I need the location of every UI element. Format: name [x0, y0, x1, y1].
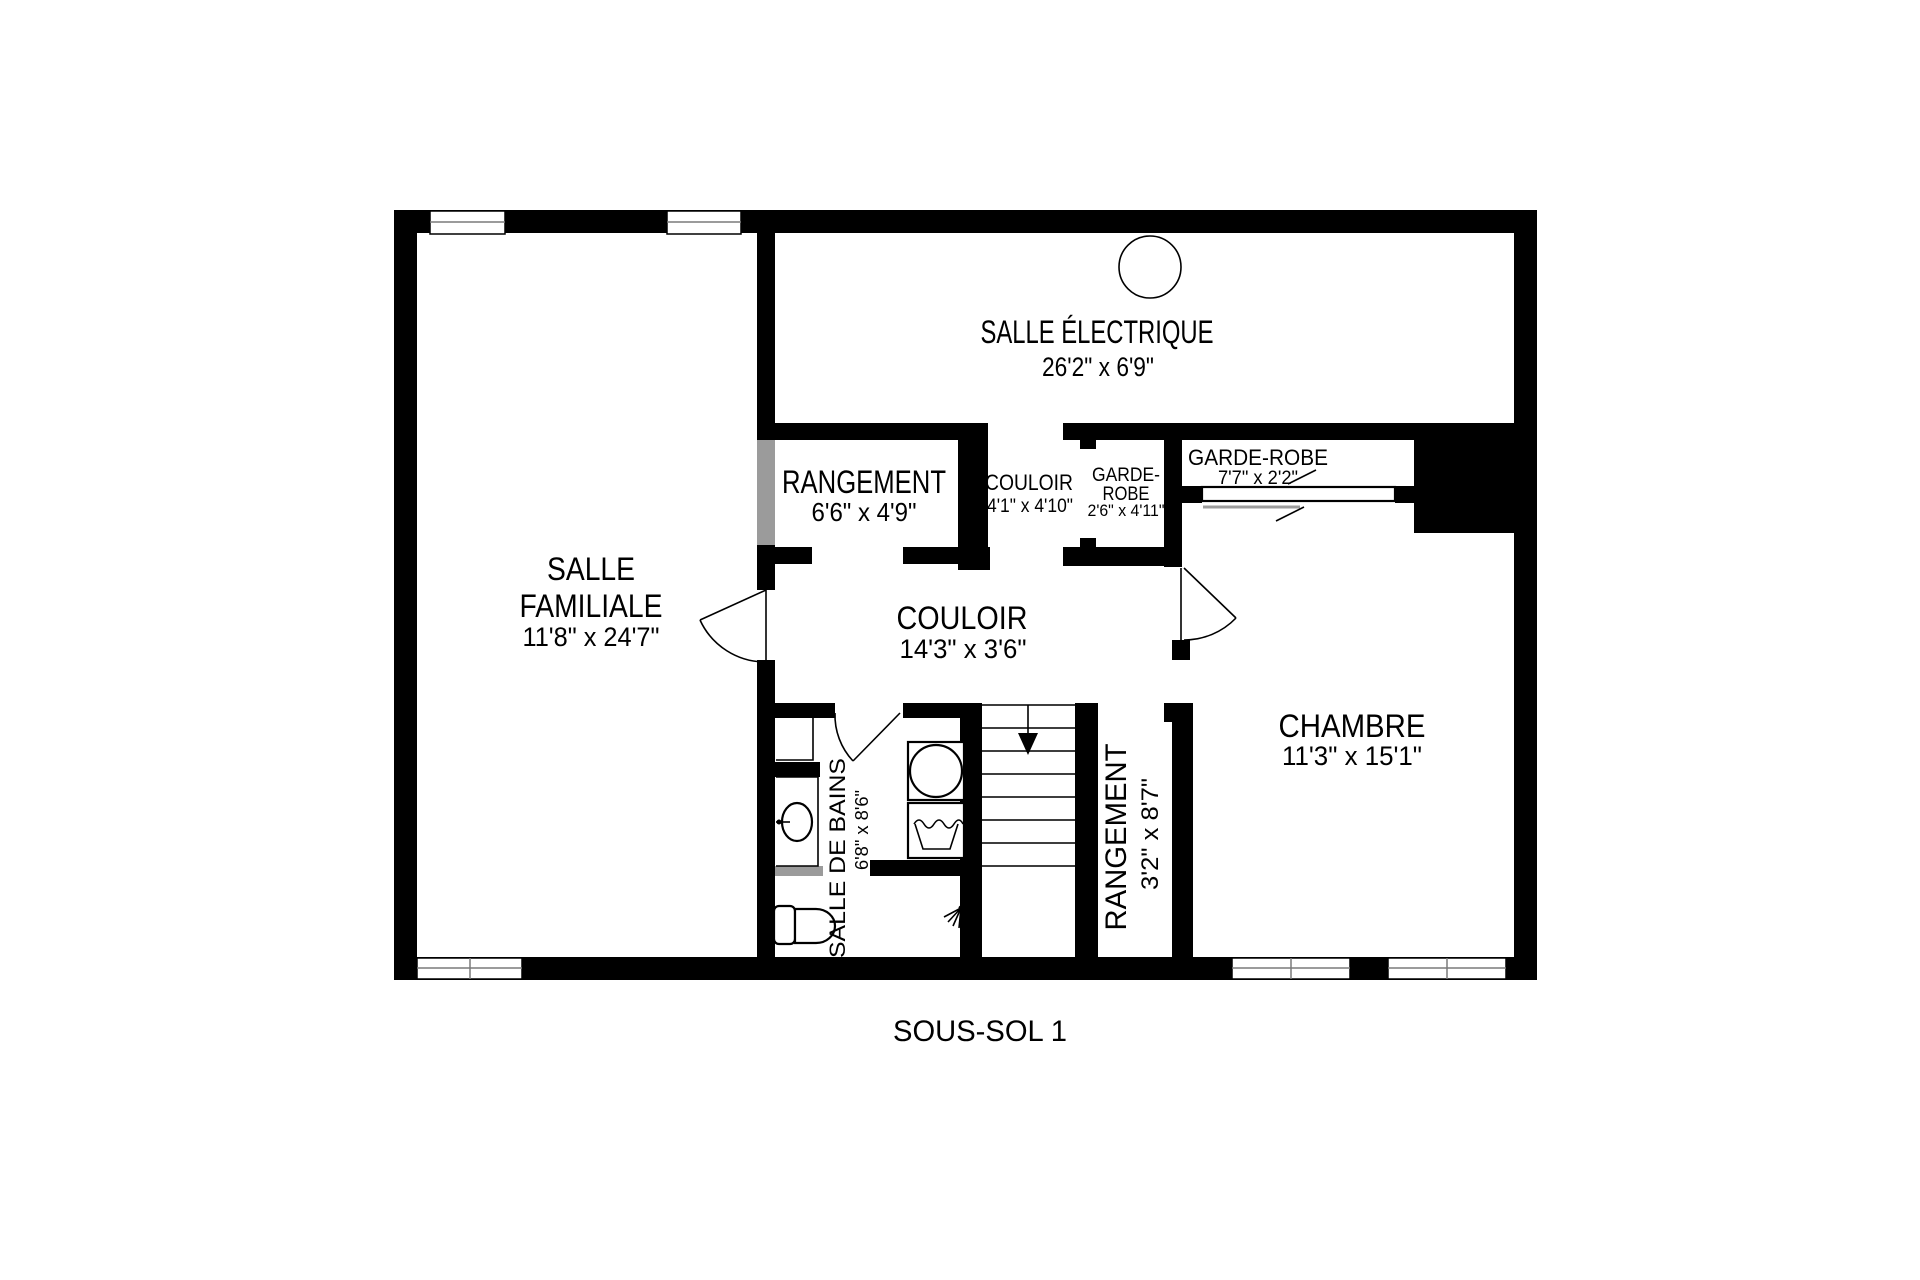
wall-electrique-south-east	[1063, 423, 1414, 440]
stub-garde-robe-top	[1080, 440, 1096, 449]
sliding-door-garde-robe	[1182, 470, 1414, 521]
floor-plan-canvas: SALLE ÉLECTRIQUE 26'2" x 6'9" SALLE FAMI…	[0, 0, 1920, 1280]
label-couloir-petit-dims: 4'1" x 4'10"	[987, 496, 1073, 517]
electrical-column-icon	[1119, 236, 1181, 298]
stairs	[982, 705, 1075, 866]
label-salle-familiale-dims: 11'8" x 24'7"	[523, 622, 660, 652]
wall-bath-partition	[757, 762, 820, 777]
window-top-1	[430, 211, 505, 234]
wall-corridor-north-1	[757, 547, 812, 564]
label-couloir-principal: COULOIR	[897, 600, 1028, 636]
label-garde-robe-long-dims: 7'7" x 2'2"	[1218, 468, 1298, 489]
washer-icon	[908, 742, 964, 800]
label-chambre: CHAMBRE	[1279, 708, 1426, 744]
stub-garde-robe-bottom	[1080, 538, 1096, 547]
label-salle-electrique: SALLE ÉLECTRIQUE	[981, 314, 1214, 350]
wall-rangement-right	[958, 440, 988, 547]
wall-bottom	[394, 957, 1537, 980]
wall-rangement-bas-right	[1172, 703, 1193, 957]
structural-mass	[1414, 423, 1537, 533]
label-garde-robe-petit-dims: 2'6" x 4'11"	[1088, 502, 1165, 520]
laundry-tub-icon	[908, 803, 964, 858]
label-salle-familiale-line2: FAMILIALE	[520, 588, 663, 624]
stub-chambre-door	[1172, 640, 1190, 660]
label-salle-de-bains-dims: 6'8" x 8'6"	[852, 790, 872, 870]
label-chambre-dims: 11'3" x 15'1"	[1282, 741, 1422, 771]
wall-stairs-right	[1075, 703, 1098, 957]
label-salle-electrique-dims: 26'2" x 6'9"	[1042, 352, 1154, 382]
wall-corridor-south-1	[775, 703, 835, 718]
window-bottom-left	[417, 958, 522, 979]
label-rangement-bas-dims: 3'2" x 8'7"	[1137, 778, 1164, 890]
wall-familiale-gray-segment	[757, 438, 775, 545]
window-top-2	[667, 211, 741, 234]
door-salle-de-bains	[835, 713, 900, 761]
vanity-sink-icon	[776, 777, 818, 866]
wall-electrique-south-west	[757, 423, 988, 440]
label-couloir-petit: COULOIR	[985, 470, 1073, 495]
wall-familiale-top	[757, 233, 775, 438]
window-chambre-2	[1388, 958, 1506, 979]
window-chambre-1	[1232, 958, 1350, 979]
wall-bath-gray-strip	[775, 866, 823, 876]
label-garde-robe-petit-line1: GARDE-	[1092, 465, 1160, 486]
label-salle-de-bains: SALLE DE BAINS	[825, 758, 850, 958]
label-garde-robe-long: GARDE-ROBE	[1188, 445, 1328, 470]
floor-plan-page: SALLE ÉLECTRIQUE 26'2" x 6'9" SALLE FAMI…	[0, 0, 1920, 1280]
wall-shower-divider	[870, 860, 982, 876]
wall-left	[394, 210, 417, 980]
door-salle-familiale	[700, 590, 766, 662]
wall-right	[1514, 210, 1537, 980]
label-rangement-haut: RANGEMENT	[782, 464, 946, 500]
plan-caption: SOUS-SOL 1	[893, 1015, 1067, 1048]
label-rangement-bas: RANGEMENT	[1100, 744, 1133, 931]
label-salle-familiale-line1: SALLE	[547, 551, 635, 587]
door-chambre	[1181, 568, 1236, 640]
label-rangement-haut-dims: 6'6" x 4'9"	[812, 497, 917, 527]
wall-garde-robe-divider	[1164, 423, 1182, 567]
wall-familiale-bottom	[757, 660, 775, 957]
linen-nook	[776, 718, 813, 760]
label-couloir-principal-dims: 14'3" x 3'6"	[900, 634, 1027, 664]
wall-corridor-north-block	[958, 547, 990, 570]
wall-top	[394, 210, 1537, 233]
